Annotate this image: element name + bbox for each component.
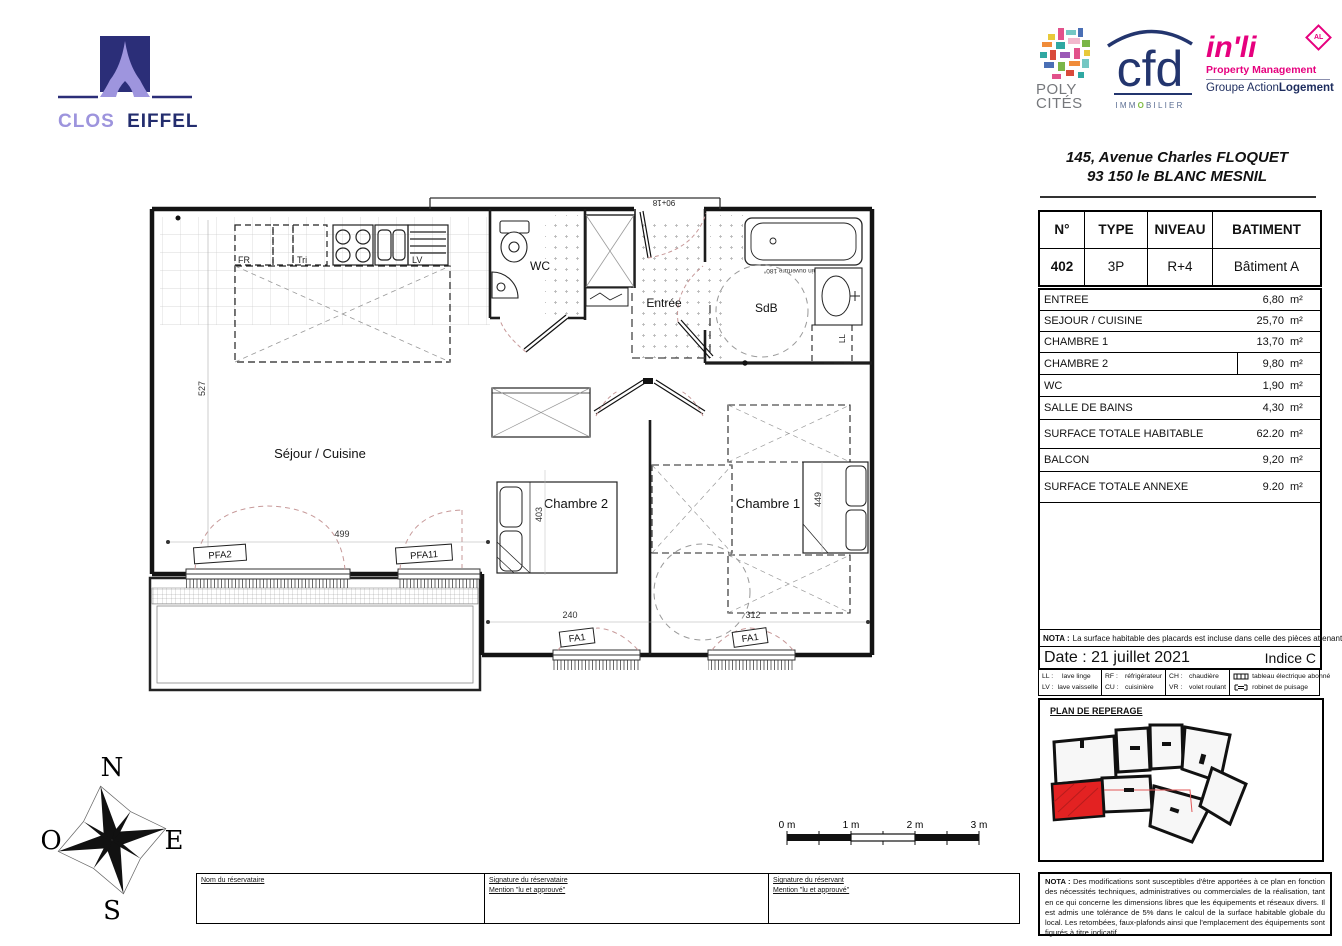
pfa2-tag: PFA2: [208, 549, 232, 562]
polycites-wordmark: POLY CITÉS: [1036, 83, 1094, 111]
signature-cell-reservataire[interactable]: Signature du réservataire Mention "lu et…: [485, 874, 769, 923]
table-row: CHAMBRE 113,70m²: [1040, 332, 1320, 353]
polycites-logo: POLY CITÉS: [1036, 26, 1094, 111]
hall-closet: [586, 215, 634, 306]
chambre2: Chambre 2 403: [497, 482, 617, 573]
compass-east: E: [165, 826, 182, 856]
unit-level: R+4: [1148, 249, 1213, 286]
clos-text: CLOS: [58, 111, 115, 132]
nota-modifications: NOTA : Des modifications sont susceptibl…: [1038, 872, 1332, 936]
fridge-label: FR: [238, 255, 250, 265]
property-management-text: Property Management: [1206, 64, 1330, 76]
signature-cell-nom[interactable]: Nom du réservataire: [197, 874, 485, 923]
entry-door-dimension: 90+18: [652, 198, 675, 207]
empty-notes-box: [1040, 503, 1320, 630]
dim-240: 240: [562, 610, 577, 620]
abbreviations-legend: LL :lave linge LV :lave vaisselle RF :ré…: [1038, 668, 1320, 696]
address-divider: [1040, 196, 1316, 198]
project-address: 145, Avenue Charles FLOQUET 93 150 le BL…: [1036, 148, 1318, 186]
groupe-actionlogement-text: Groupe ActionLogement: [1206, 82, 1330, 94]
room-areas-table: ENTREE6,80m² SEJOUR / CUISINE25,70m² CHA…: [1038, 288, 1322, 670]
ll-label: LL: [838, 334, 847, 343]
chambre2-label: Chambre 2: [544, 496, 608, 511]
sejour-placard: [492, 388, 590, 437]
svg-text:0 m: 0 m: [779, 820, 796, 831]
floor-plan: 90+18: [140, 190, 885, 710]
address-line2: 93 150 le BLANC MESNIL: [1036, 167, 1318, 186]
tri-label: Tri: [297, 255, 307, 265]
legend-col-4: tableau électrique abonné robinet de pui…: [1230, 669, 1333, 695]
floor-textures: [160, 215, 743, 362]
washing-machine-spot: [812, 325, 852, 363]
compass-west: O: [42, 826, 62, 856]
balcony: [150, 575, 480, 690]
unit-info-table: N° TYPE NIVEAU BATIMENT 402 3P R+4 Bâtim…: [1038, 210, 1322, 287]
scale-bar: 0 m 1 m 2 m 3 m: [778, 818, 990, 852]
address-line1: 145, Avenue Charles FLOQUET: [1036, 148, 1318, 167]
table-row: CHAMBRE 29,80m²: [1040, 353, 1320, 375]
eiffel-tower-icon: [58, 36, 192, 104]
dim-527: 527: [197, 381, 207, 396]
unit-type: 3P: [1085, 249, 1148, 286]
dim-499: 499: [334, 529, 349, 539]
eiffel-text: EIFFEL: [127, 111, 198, 132]
tableau-electrique-icon: [1233, 673, 1249, 680]
plan-date: Date : 21 juillet 2021: [1044, 649, 1265, 667]
compass-north: N: [101, 756, 124, 783]
signature-table: Nom du réservataire Signature du réserva…: [196, 873, 1020, 924]
dim-403: 403: [534, 507, 544, 522]
table-row: SEJOUR / CUISINE25,70m²: [1040, 311, 1320, 332]
legend-col-3: CH :chaudière VR :volet roulant: [1166, 669, 1230, 695]
revision-index: Indice C: [1265, 650, 1316, 666]
nota-placards: NOTA :La surface habitable des placards …: [1040, 630, 1320, 647]
unit-table-data-row: 402 3P R+4 Bâtiment A: [1040, 249, 1320, 286]
robinet-puisage-icon: [1233, 684, 1249, 691]
clos-eiffel-logo: CLOS EIFFEL: [58, 36, 192, 133]
lv-label: LV: [412, 255, 422, 265]
col-niveau: NIVEAU: [1148, 212, 1213, 249]
highlighted-unit: [1052, 780, 1104, 820]
cfd-logo: cfd IMMOBILIER: [1102, 26, 1198, 110]
svg-text:3 m: 3 m: [971, 820, 988, 831]
signature-cell-reservant[interactable]: Signature du réservant Mention "lu et ap…: [769, 874, 1019, 923]
col-numero: N°: [1040, 212, 1085, 249]
unit-table-header-row: N° TYPE NIVEAU BATIMENT: [1040, 212, 1320, 249]
table-row: BALCON9,20m²: [1040, 449, 1320, 472]
compass-rose-icon: N O E S: [42, 756, 182, 922]
toilet-tank: [500, 221, 529, 233]
fa1a-tag: FA1: [568, 632, 586, 645]
reperage-title: PLAN DE REPERAGE: [1050, 706, 1322, 716]
chambre1-label: Chambre 1: [736, 496, 800, 511]
date-strip: Date : 21 juillet 2021 Indice C: [1040, 647, 1320, 670]
svg-text:2 m: 2 m: [907, 820, 924, 831]
legend-col-1: LL :lave linge LV :lave vaisselle: [1039, 669, 1102, 695]
table-row: SALLE DE BAINS4,30m²: [1040, 397, 1320, 420]
bathtub: [745, 218, 862, 265]
wc-room: WC: [492, 221, 550, 298]
col-type: TYPE: [1085, 212, 1148, 249]
svg-text:1 m: 1 m: [843, 820, 860, 831]
floorplan-page: CLOS EIFFEL POLY CITÉS: [0, 0, 1342, 946]
cfd-immobilier-wordmark: IMMOBILIER: [1102, 101, 1198, 110]
turning-circle-chambre1: [654, 544, 750, 640]
table-row-total-annexe: SURFACE TOTALE ANNEXE9.20m²: [1040, 472, 1320, 503]
table-row-total-habitable: SURFACE TOTALE HABITABLE62.20m²: [1040, 420, 1320, 449]
cfd-mark-icon: cfd: [1102, 26, 1198, 100]
entree-label: Entrée: [646, 296, 682, 310]
sejour-label: Séjour / Cuisine: [274, 446, 366, 461]
clos-eiffel-wordmark: CLOS EIFFEL: [58, 111, 192, 133]
inli-divider: [1206, 79, 1330, 80]
chambre1: Chambre 1 449: [652, 405, 868, 640]
reperage-mini-plan: [1040, 716, 1318, 850]
sdb-label: SdB: [755, 301, 778, 315]
col-batiment: BATIMENT: [1213, 212, 1320, 249]
fa1b-tag: FA1: [741, 632, 759, 645]
dim-449: 449: [813, 492, 823, 507]
partner-logos: POLY CITÉS cfd IMMOBILIER in'li AL Prope…: [1036, 26, 1318, 138]
inli-logo: in'li AL Property Management Groupe Acti…: [1206, 26, 1330, 94]
wc-label: WC: [530, 259, 550, 273]
compass-south: S: [103, 896, 121, 922]
dim-312: 312: [745, 610, 760, 620]
unit-number: 402: [1040, 249, 1085, 286]
polycites-mosaic-icon: [1036, 26, 1094, 84]
location-key-plan: PLAN DE REPERAGE: [1038, 698, 1324, 862]
svg-text:cfd: cfd: [1117, 41, 1184, 97]
table-row: ENTREE6,80m²: [1040, 290, 1320, 311]
table-row: WC1,90m²: [1040, 375, 1320, 397]
unit-building: Bâtiment A: [1213, 249, 1320, 286]
pfa11-tag: PFA11: [410, 549, 439, 562]
legend-col-2: RF :réfrigérateur CU :cuisinière: [1102, 669, 1166, 695]
